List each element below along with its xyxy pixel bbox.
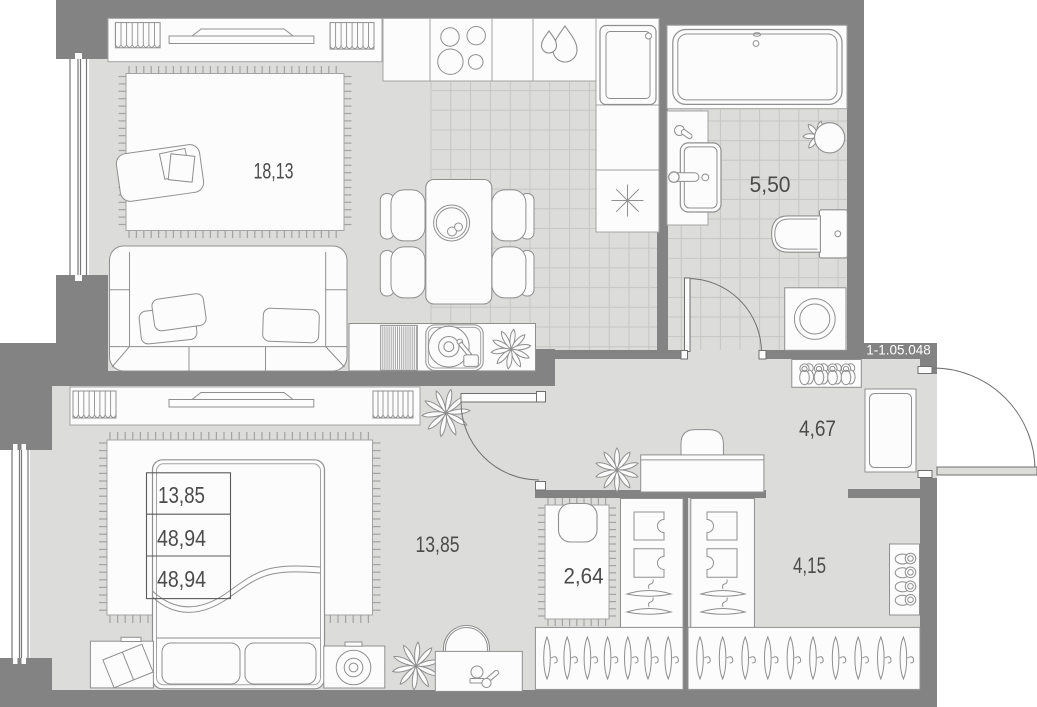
svg-text:48,94: 48,94: [157, 566, 206, 592]
svg-text:13,85: 13,85: [416, 532, 460, 557]
svg-text:4,15: 4,15: [793, 553, 826, 578]
svg-text:4,67: 4,67: [799, 416, 836, 441]
svg-text:1-1.05.048: 1-1.05.048: [866, 343, 931, 358]
svg-text:18,13: 18,13: [254, 159, 294, 184]
svg-text:2,64: 2,64: [564, 564, 604, 589]
svg-text:48,94: 48,94: [157, 525, 206, 551]
svg-text:5,50: 5,50: [750, 172, 791, 197]
svg-text:13,85: 13,85: [158, 482, 205, 508]
